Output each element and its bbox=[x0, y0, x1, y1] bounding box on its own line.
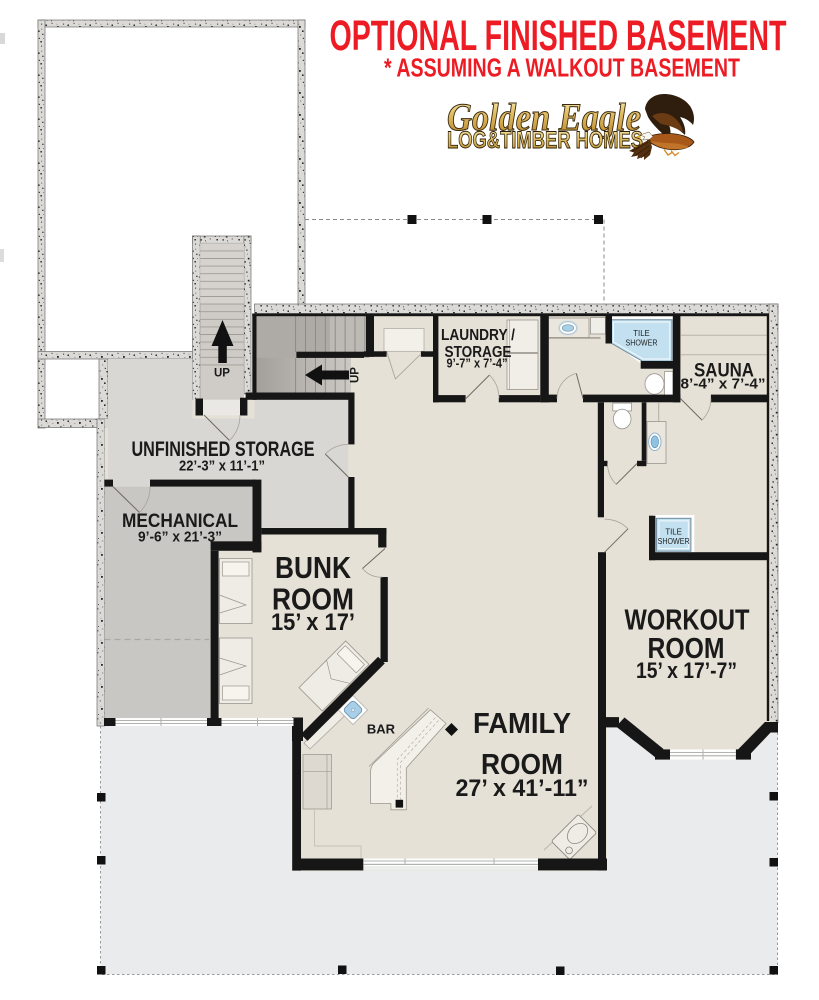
svg-text:* ASSUMING A WALKOUT BASEMENT: * ASSUMING A WALKOUT BASEMENT bbox=[384, 55, 740, 83]
svg-text:FAMILY: FAMILY bbox=[473, 708, 571, 740]
svg-text:LAUNDRY /: LAUNDRY / bbox=[441, 327, 515, 344]
svg-text:BAR: BAR bbox=[367, 722, 396, 737]
svg-text:LOG&TIMBER HOMES: LOG&TIMBER HOMES bbox=[447, 127, 643, 154]
svg-text:8’-4” x 7’-4”: 8’-4” x 7’-4” bbox=[681, 376, 766, 393]
svg-text:UP: UP bbox=[214, 368, 230, 380]
svg-text:TILE: TILE bbox=[633, 329, 649, 338]
svg-text:27’ x 41’-11”: 27’ x 41’-11” bbox=[456, 775, 589, 802]
svg-text:UP: UP bbox=[350, 367, 362, 383]
svg-text:WORKOUT: WORKOUT bbox=[625, 605, 750, 637]
svg-text:15’ x 17’: 15’ x 17’ bbox=[271, 609, 355, 636]
svg-text:SHOWER: SHOWER bbox=[658, 537, 690, 546]
svg-text:OPTIONAL FINISHED BASEMENT: OPTIONAL FINISHED BASEMENT bbox=[330, 13, 787, 60]
svg-text:SHOWER: SHOWER bbox=[626, 339, 658, 348]
svg-text:22’-3” x 11’-1”: 22’-3” x 11’-1” bbox=[179, 458, 265, 475]
svg-text:9’-7” x 7’-4”: 9’-7” x 7’-4” bbox=[447, 356, 508, 371]
svg-text:9’-6” x 21’-3”: 9’-6” x 21’-3” bbox=[138, 529, 222, 546]
svg-text:BUNK: BUNK bbox=[275, 550, 352, 585]
svg-text:15’ x 17’-7”: 15’ x 17’-7” bbox=[636, 658, 737, 683]
svg-text:TILE: TILE bbox=[665, 528, 681, 537]
